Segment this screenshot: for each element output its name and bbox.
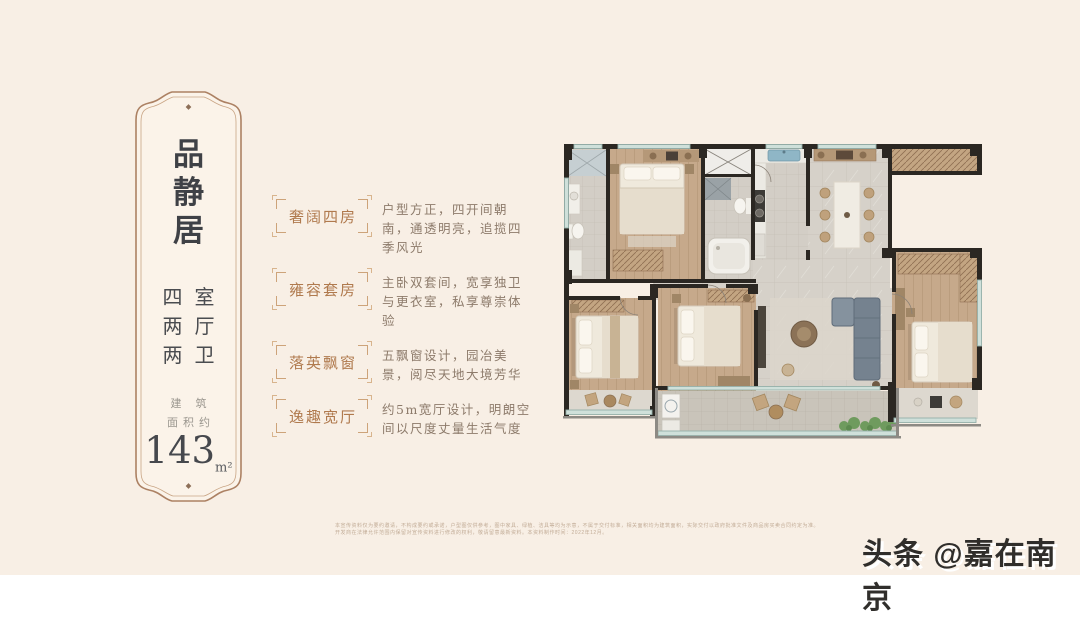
area-value: 143m² [144, 432, 232, 474]
floorplan-image [558, 138, 990, 448]
feature-item: 落英飘窗 五飘窗设计，园冶美景，阅尽天地大境芳华 [276, 345, 534, 384]
area-label: 建筑 面积约 [167, 395, 210, 430]
spec-rooms: 四室 [163, 287, 227, 307]
spec-halls: 两厅 [163, 316, 227, 336]
disclaimer-line: 开发商在法律允许范围内保留对宣传资料进行修改的权利，敬请留意最新资料。本资料制作… [335, 530, 891, 537]
feature-tag: 雍容套房 [276, 272, 368, 306]
feature-list: 奢阔四房 户型方正，四开间朝南，通透明亮，追揽四季风光 雍容套房 主卧双套间，宽… [276, 199, 534, 453]
disclaimer-line: 本宣传资料仅为要约邀请，不构成要约或承诺，户型图仅供参考，图中家具、绿植、洁具等… [335, 523, 891, 530]
feature-tag: 逸趣宽厅 [276, 399, 368, 433]
area-unit: m² [215, 460, 233, 475]
toutiao-watermark: 头条 @嘉在南京 [862, 529, 1080, 617]
feature-desc: 主卧双套间，宽享独卫与更衣室，私享尊崇体验 [382, 273, 534, 330]
poster-background: 品 静 居 四室 两厅 两卫 建筑 面积约 143m² 奢阔四房 户型方正 [0, 0, 1080, 575]
feature-item: 雍容套房 主卧双套间，宽享独卫与更衣室，私享尊崇体验 [276, 272, 534, 330]
feature-tag: 奢阔四房 [276, 199, 368, 233]
feature-desc: 约5m宽厅设计，明朗空间以尺度丈量生活气度 [382, 400, 534, 438]
feature-item: 奢阔四房 户型方正，四开间朝南，通透明亮，追揽四季风光 [276, 199, 534, 257]
plaque-title-char: 居 [173, 216, 204, 247]
plaque-title: 品 静 居 [173, 140, 204, 247]
plaque-title-char: 静 [173, 178, 204, 209]
plaque-specs: 四室 两厅 两卫 [163, 287, 215, 365]
feature-desc: 五飘窗设计，园冶美景，阅尽天地大境芳华 [382, 346, 534, 384]
feature-desc: 户型方正，四开间朝南，通透明亮，追揽四季风光 [382, 200, 534, 257]
disclaimer: 本宣传资料仅为要约邀请，不构成要约或承诺，户型图仅供参考，图中家具、绿植、洁具等… [335, 523, 891, 537]
plaque-title-char: 品 [173, 140, 204, 171]
spec-baths: 两卫 [163, 345, 227, 365]
feature-tag: 落英飘窗 [276, 345, 368, 379]
feature-item: 逸趣宽厅 约5m宽厅设计，明朗空间以尺度丈量生活气度 [276, 399, 534, 438]
plaque: 品 静 居 四室 两厅 两卫 建筑 面积约 143m² [132, 88, 245, 505]
